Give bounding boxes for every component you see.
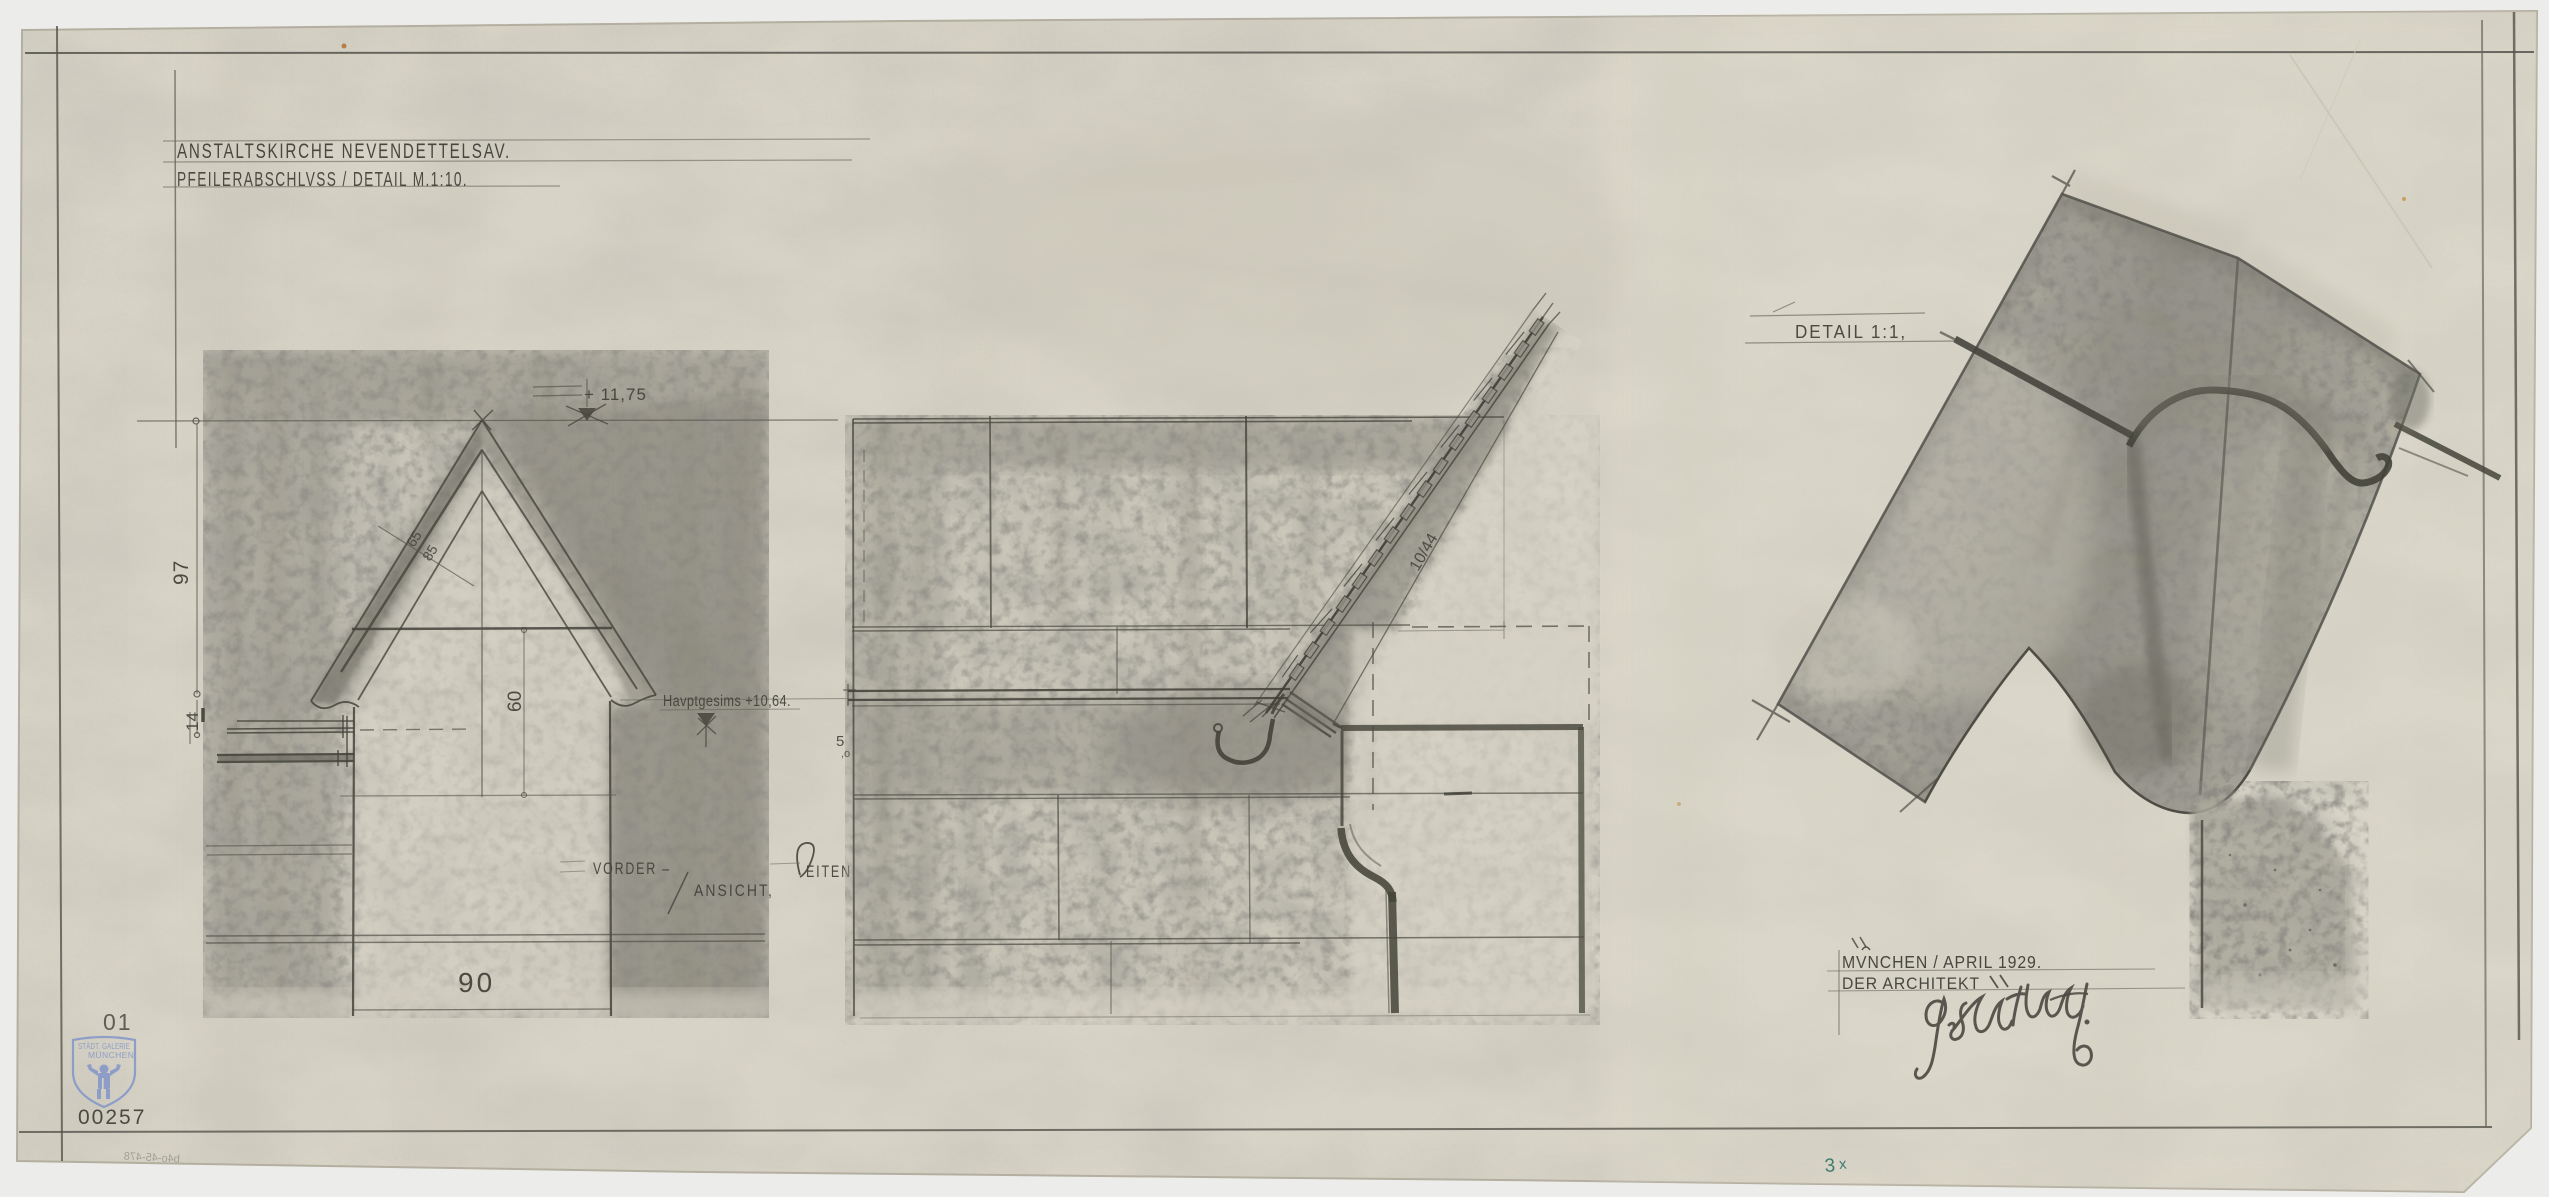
svg-text:ANSICHT,: ANSICHT,: [694, 881, 774, 900]
svg-text:MVNCHEN / APRIL 1929.: MVNCHEN / APRIL 1929.: [1842, 952, 2042, 972]
svg-text:+ 11,75: + 11,75: [584, 385, 647, 404]
svg-text:DETAIL 1:1,: DETAIL 1:1,: [1795, 322, 1907, 342]
svg-text:ANSTALTSKIRCHE NEVENDETTELSAV.: ANSTALTSKIRCHE NEVENDETTELSAV.: [177, 139, 511, 163]
svg-text:,o: ,o: [841, 748, 850, 760]
svg-text:Havptgesims +10,64.: Havptgesims +10,64.: [663, 693, 791, 710]
svg-text:60: 60: [505, 691, 526, 712]
svg-text:00257: 00257: [78, 1106, 146, 1129]
svg-text:PFEILERABSCHLVSS / DETAIL M.1:: PFEILERABSCHLVSS / DETAIL M.1:10.: [177, 169, 468, 191]
svg-text:VORDER –: VORDER –: [593, 859, 671, 878]
svg-text:01: 01: [103, 1009, 133, 1035]
svg-text:97: 97: [170, 560, 193, 585]
svg-text:90: 90: [458, 967, 495, 998]
svg-text:MÜNCHEN: MÜNCHEN: [88, 1050, 134, 1060]
svg-text:14: 14: [183, 712, 202, 731]
